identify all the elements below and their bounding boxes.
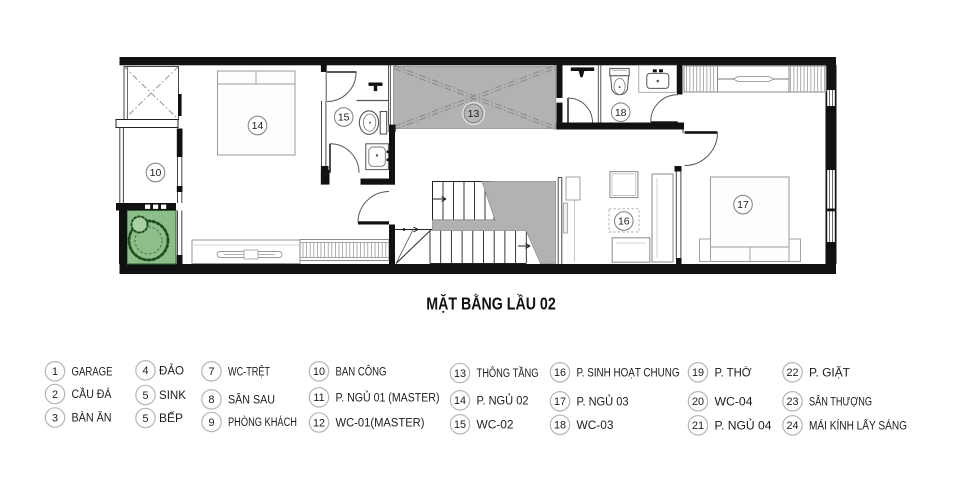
svg-text:11: 11 — [313, 392, 324, 404]
svg-text:22: 22 — [786, 367, 798, 379]
svg-text:5: 5 — [142, 390, 148, 402]
svg-text:WC-01(MASTER): WC-01(MASTER) — [336, 416, 425, 430]
svg-text:MẶT BẰNG LẦU 02: MẶT BẰNG LẦU 02 — [426, 293, 556, 314]
svg-text:P. NGỦ 04: P. NGỦ 04 — [715, 418, 772, 433]
svg-text:13: 13 — [454, 368, 466, 380]
svg-text:8: 8 — [208, 394, 214, 406]
svg-text:15: 15 — [454, 419, 466, 431]
svg-text:18: 18 — [554, 420, 566, 432]
svg-text:THÔNG TẦNG: THÔNG TẦNG — [477, 365, 539, 380]
svg-text:WC-02: WC-02 — [477, 418, 514, 432]
svg-text:3: 3 — [52, 412, 58, 424]
svg-text:20: 20 — [692, 396, 704, 408]
svg-text:2: 2 — [52, 389, 58, 401]
svg-text:PHÒNG KHÁCH: PHÒNG KHÁCH — [228, 414, 297, 429]
svg-text:P. NGỦ 01 (MASTER): P. NGỦ 01 (MASTER) — [336, 390, 440, 405]
svg-text:15: 15 — [338, 112, 350, 124]
svg-text:12: 12 — [313, 417, 325, 429]
svg-text:P. GIẶT: P. GIẶT — [809, 365, 851, 380]
svg-text:BAN CÔNG: BAN CÔNG — [336, 364, 387, 379]
svg-text:21: 21 — [692, 420, 704, 432]
svg-text:CẦU ĐÁ: CẦU ĐÁ — [72, 386, 113, 401]
svg-text:10: 10 — [313, 366, 325, 378]
svg-text:5: 5 — [142, 413, 148, 425]
svg-text:P. NGỦ 02: P. NGỦ 02 — [477, 393, 529, 408]
svg-text:18: 18 — [615, 107, 627, 119]
svg-text:ĐẢO: ĐẢO — [159, 363, 184, 378]
svg-text:P. NGỦ 03: P. NGỦ 03 — [577, 394, 629, 409]
svg-text:24: 24 — [786, 420, 798, 432]
svg-text:GARAGE: GARAGE — [72, 365, 113, 379]
svg-text:SÂN THƯỢNG: SÂN THƯỢNG — [809, 394, 872, 409]
svg-text:WC-TRỆT: WC-TRỆT — [228, 364, 270, 379]
svg-text:BÀN ĂN: BÀN ĂN — [72, 410, 112, 425]
svg-text:BẾP: BẾP — [159, 410, 183, 425]
svg-text:7: 7 — [208, 366, 214, 378]
svg-text:23: 23 — [786, 396, 798, 408]
svg-text:13: 13 — [468, 108, 480, 120]
svg-text:17: 17 — [737, 199, 749, 211]
svg-text:16: 16 — [554, 367, 566, 379]
svg-text:4: 4 — [142, 365, 148, 377]
svg-text:WC-04: WC-04 — [715, 395, 753, 409]
svg-text:P. THỜ: P. THỜ — [715, 365, 753, 380]
svg-text:9: 9 — [208, 417, 214, 429]
svg-text:17: 17 — [554, 396, 566, 408]
svg-text:SÂN SAU: SÂN SAU — [228, 392, 275, 407]
svg-text:10: 10 — [150, 167, 162, 179]
svg-text:P. SINH HOẠT CHUNG: P. SINH HOẠT CHUNG — [577, 366, 680, 380]
svg-text:WC-03: WC-03 — [577, 418, 614, 432]
svg-text:19: 19 — [692, 367, 704, 379]
svg-text:MÁI KÍNH LẤY SÁNG: MÁI KÍNH LẤY SÁNG — [809, 418, 907, 433]
svg-text:16: 16 — [618, 216, 630, 228]
svg-text:14: 14 — [252, 120, 264, 132]
svg-text:14: 14 — [454, 395, 466, 407]
svg-text:1: 1 — [52, 366, 58, 378]
svg-text:SINK: SINK — [159, 388, 186, 402]
